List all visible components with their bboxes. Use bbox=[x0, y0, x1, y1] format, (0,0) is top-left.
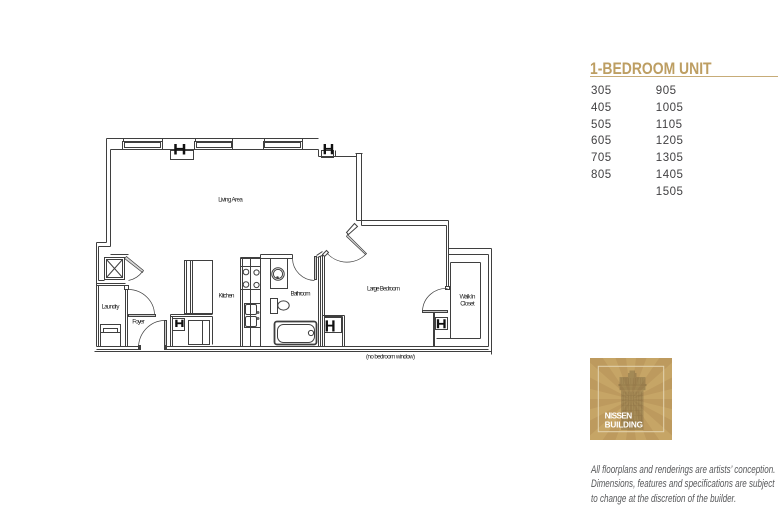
svg-text:Bathroom: Bathroom bbox=[291, 291, 311, 298]
svg-text:Closet: Closet bbox=[460, 301, 475, 308]
svg-text:Large Bedroom: Large Bedroom bbox=[367, 286, 400, 293]
svg-text:Living Area: Living Area bbox=[218, 197, 243, 204]
svg-text:Walk In: Walk In bbox=[460, 294, 477, 301]
svg-text:Kitchen: Kitchen bbox=[219, 293, 236, 300]
svg-text:NISSEN: NISSEN bbox=[605, 411, 633, 420]
svg-text:Foyer: Foyer bbox=[132, 319, 144, 326]
svg-text:Laundry: Laundry bbox=[102, 304, 121, 311]
svg-text:BUILDING: BUILDING bbox=[605, 421, 643, 430]
svg-text:(no bedroom window): (no bedroom window) bbox=[366, 354, 415, 361]
